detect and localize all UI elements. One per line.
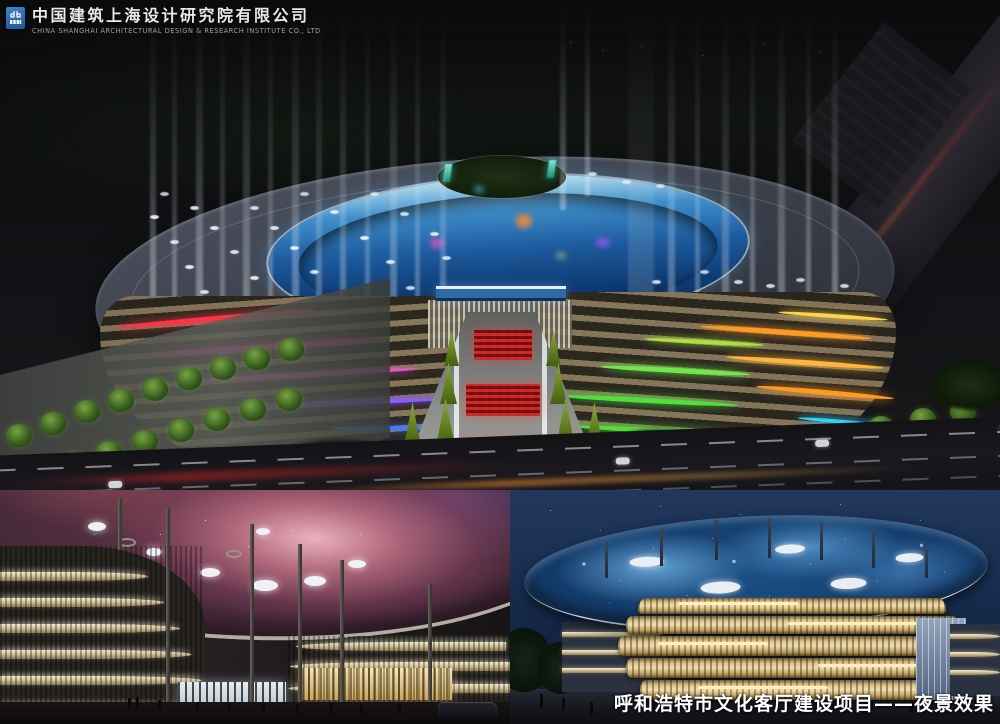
parked-car (438, 702, 498, 718)
panel-canopy-underside-view (0, 490, 510, 724)
gold-light-line (678, 602, 798, 605)
company-header: 中国建筑上海设计研究院有限公司 CHINA SHANGHAI ARCHITECT… (6, 7, 321, 35)
orange-garden-glow (516, 214, 532, 228)
left-building-mass (0, 546, 205, 724)
presentation-board: 中国建筑上海设计研究院有限公司 CHINA SHANGHAI ARCHITECT… (0, 0, 1000, 724)
roof-opening (629, 556, 663, 567)
canopy-column (166, 508, 170, 710)
gold-facade (618, 598, 968, 700)
project-caption: 呼和浩特市文化客厅建设项目——夜景效果 (614, 689, 994, 716)
canopy-spotlight (88, 522, 106, 531)
roof-mast (605, 542, 608, 578)
glass-link-bridge (436, 286, 566, 301)
person-silhouette (128, 698, 131, 708)
stars (510, 490, 511, 491)
round-tree (6, 424, 32, 447)
panel-dusk-facade-view: 呼和浩特市文化客厅建设项目——夜景效果 (510, 490, 1000, 724)
car (108, 481, 122, 489)
ground (0, 702, 510, 724)
yellow-garden-glow (556, 252, 566, 259)
light-beam (150, 0, 156, 300)
person-silhouette (540, 694, 543, 708)
panel-aerial-night-view: 中国建筑上海设计研究院有限公司 CHINA SHANGHAI ARCHITECT… (0, 0, 1000, 490)
company-name-zh: 中国建筑上海设计研究院有限公司 (32, 7, 321, 24)
water-sparkle (522, 526, 523, 527)
red-paving-pattern (474, 330, 532, 360)
facade-band (638, 598, 946, 614)
cyan-garden-glow (474, 186, 484, 193)
company-logo-icon (6, 7, 25, 29)
purple-garden-glow (596, 238, 610, 247)
roof-skylights-right (0, 0, 9, 4)
company-name-en: CHINA SHANGHAI ARCHITECTURAL DESIGN & RE… (32, 27, 321, 35)
